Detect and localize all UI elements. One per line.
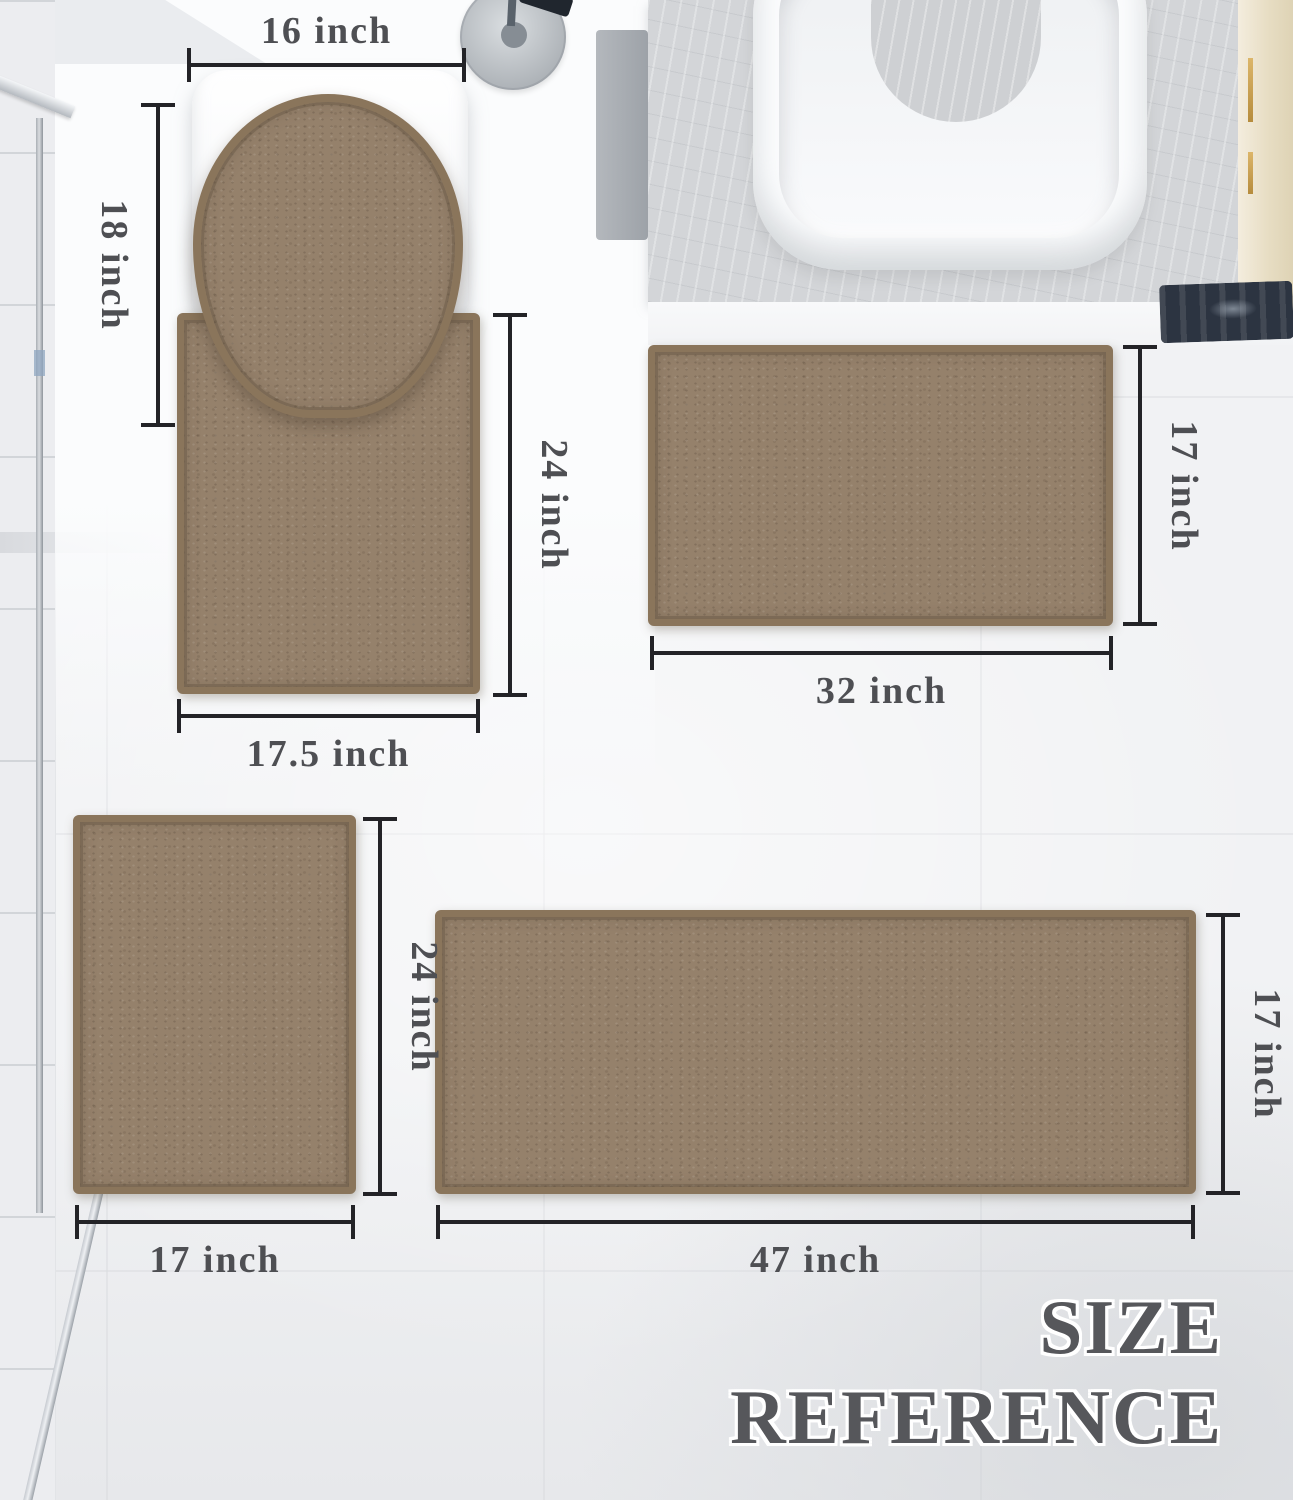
- dimension-line: [187, 63, 466, 67]
- dark-bath-towel: [1159, 281, 1293, 344]
- dimension-label: 18 inch: [92, 199, 136, 330]
- dimension-line: [156, 103, 160, 427]
- dimension-label: 17 inch: [149, 1238, 280, 1282]
- cabinet-handle: [1248, 152, 1253, 194]
- title-line-2: REFERENCE: [730, 1372, 1223, 1462]
- shower-glass-frame: [36, 118, 43, 1213]
- bathtub: [753, 0, 1147, 270]
- vanity-cabinet: [1238, 0, 1293, 312]
- dimension-label: 24 inch: [402, 941, 446, 1072]
- dimension-line: [177, 714, 480, 718]
- dimension-line: [378, 817, 382, 1196]
- dimension-line: [75, 1220, 355, 1224]
- dimension-label: 17 inch: [1245, 988, 1289, 1119]
- dimension-label: 17.5 inch: [247, 732, 411, 776]
- dimension-label: 24 inch: [532, 439, 576, 570]
- size-reference-product-image: 16 inch 18 inch 24 inch 17.5 inch 17 inc…: [0, 0, 1293, 1500]
- dimension-label: 47 inch: [750, 1238, 881, 1282]
- runner-rug-47x17: [435, 910, 1196, 1194]
- dimension-line: [508, 313, 512, 697]
- cabinet-handle: [1248, 58, 1253, 122]
- toilet-lid-cover-rug: [193, 94, 463, 418]
- bath-mat-32x17: [648, 345, 1113, 626]
- dimension-line: [650, 651, 1113, 655]
- dimension-label: 32 inch: [816, 669, 947, 713]
- shower-wall: [0, 0, 56, 1500]
- dimension-label: 16 inch: [261, 9, 392, 53]
- dimension-line: [1221, 913, 1225, 1195]
- title-line-1: SIZE: [730, 1282, 1223, 1372]
- dimension-label: 17 inch: [1162, 420, 1206, 551]
- gray-towel: [596, 30, 648, 240]
- dimension-line: [1138, 345, 1142, 626]
- bath-mat-17x24: [73, 815, 356, 1194]
- dimension-line: [436, 1220, 1195, 1224]
- page-title: SIZE REFERENCE: [730, 1282, 1223, 1462]
